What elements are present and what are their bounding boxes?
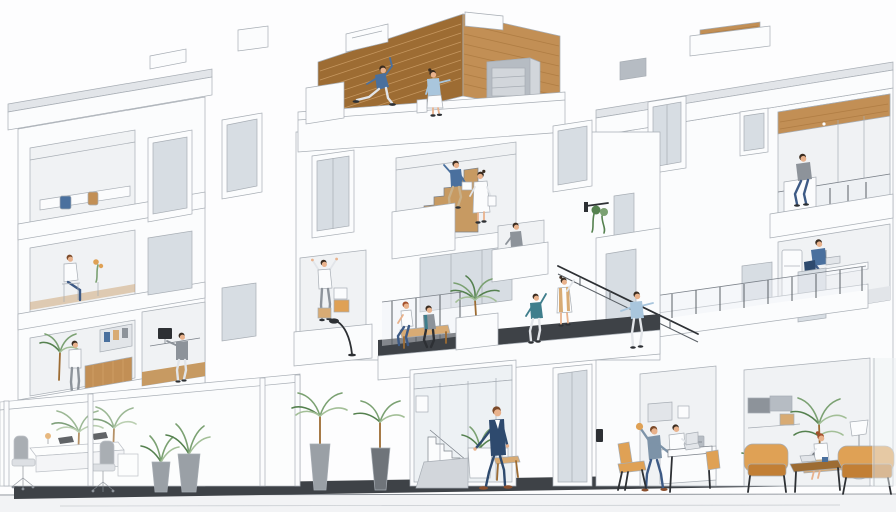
intercom-panel	[596, 429, 603, 442]
building-cutaway-illustration	[0, 0, 896, 512]
moving-balcony	[294, 250, 372, 366]
upper-laptop	[826, 256, 840, 265]
table-laptop-screen	[686, 432, 698, 445]
hanging-clothes-blue	[104, 332, 110, 342]
ceiling-light	[822, 122, 825, 125]
street-palm-2	[354, 401, 404, 490]
hanging-clothes-tan	[113, 330, 119, 340]
wall-frame	[416, 396, 428, 412]
cafe-frame	[678, 406, 689, 418]
roof-chimney-box	[238, 26, 268, 51]
hanging-clothes-grey	[122, 328, 128, 338]
roof-deck	[298, 12, 565, 152]
grey-pot-2	[178, 454, 200, 492]
office-glass	[0, 400, 300, 486]
center-tall-window	[553, 120, 592, 192]
bay-office	[142, 302, 205, 386]
side-door	[553, 364, 603, 486]
stair-guard-slab	[392, 203, 455, 259]
left-roof-box	[150, 49, 186, 69]
concrete-bench	[416, 458, 468, 488]
moving-box-orange	[334, 300, 349, 312]
snack	[636, 423, 643, 430]
cafe-cabinet	[648, 402, 672, 422]
roof-vent-box	[620, 58, 646, 80]
grey-pot-1	[152, 462, 170, 492]
lounge-glass	[872, 358, 896, 486]
blue-chair	[60, 196, 71, 209]
bay-window-2	[148, 231, 192, 295]
illustration-canvas	[0, 0, 896, 512]
orange-plant	[93, 259, 99, 265]
pier-window-2	[222, 283, 256, 341]
moving-box-wood	[318, 308, 331, 318]
center-pier-window	[312, 150, 354, 238]
entrance	[410, 360, 520, 490]
mid-pier	[222, 113, 262, 341]
moving-box-white	[334, 288, 347, 299]
laundry-basket	[462, 182, 472, 190]
monitor	[158, 328, 172, 339]
roof-glass-panel	[306, 82, 344, 124]
white-planter-box	[456, 313, 498, 350]
blue-cup	[822, 457, 828, 462]
table-laptop	[800, 455, 816, 462]
right-tower-window-2	[740, 108, 768, 156]
bag	[488, 196, 496, 206]
bay-window-1	[148, 130, 192, 222]
pier-window-1	[222, 113, 262, 199]
small-balcony	[492, 220, 548, 282]
towel	[417, 99, 427, 113]
cafe-chair-2	[706, 450, 720, 470]
lounge	[742, 358, 896, 494]
wood-chair	[88, 192, 98, 205]
